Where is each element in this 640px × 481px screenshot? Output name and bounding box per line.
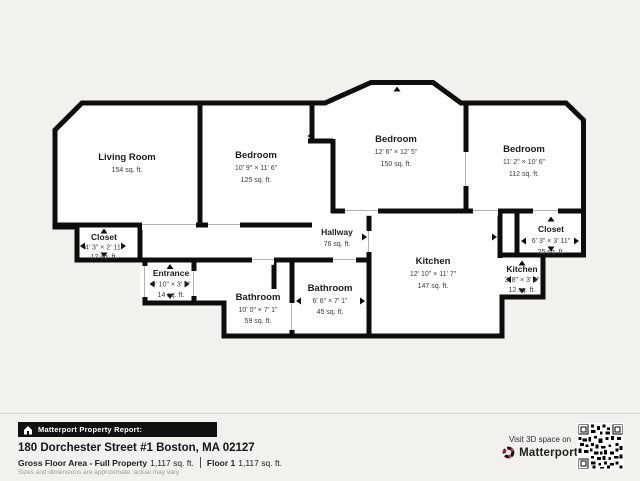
report-title: Matterport Property Report:	[38, 425, 142, 434]
room-label-closet-right: Closet	[538, 224, 564, 234]
room-dims-kitchen-small: 3' 8" × 3' 4"	[504, 277, 540, 284]
room-area-bathroom-large: 59 sq. ft.	[245, 318, 272, 325]
room-area-closet-left: 12 sq. ft.	[91, 254, 118, 261]
gfa-value: 1,117 sq. ft.	[150, 458, 194, 468]
report-footer: Matterport Property Report: 180 Dorchest…	[0, 413, 640, 481]
room-label-bedroom-1: Bedroom	[235, 150, 277, 161]
room-dims-kitchen: 12' 10" × 11' 7"	[410, 271, 457, 278]
matterport-wordmark: Matterport	[519, 447, 578, 459]
room-dims-bedroom-1: 10' 9" × 11' 6"	[235, 165, 278, 172]
room-label-entrance: Entrance	[153, 268, 190, 278]
room-area-living-room: 154 sq. ft.	[112, 167, 143, 174]
floor-plan: Living Room 154 sq. ft. Bedroom 10' 9" ×…	[0, 0, 640, 413]
property-address: 180 Dorchester Street #1 Boston, MA 0212…	[18, 442, 255, 454]
report-title-bar: Matterport Property Report:	[18, 422, 217, 437]
room-area-bedroom-2: 150 sq. ft.	[381, 161, 412, 168]
room-label-closet-left: Closet	[91, 232, 117, 242]
room-label-kitchen: Kitchen	[416, 256, 451, 267]
area-metrics: Gross Floor Area - Full Property 1,117 s…	[18, 457, 282, 468]
room-area-bedroom-3: 112 sq. ft.	[509, 171, 539, 178]
room-area-kitchen-small: 12 sq. ft.	[509, 287, 536, 294]
room-dims-bedroom-2: 12' 6" × 12' 5"	[375, 149, 418, 156]
matterport-logo-icon	[502, 446, 515, 459]
room-label-bathroom-small: Bathroom	[308, 283, 353, 294]
room-label-bedroom-3: Bedroom	[503, 144, 545, 155]
room-dims-bedroom-3: 11' 2" × 10' 6"	[503, 159, 546, 166]
room-dims-entrance: 9' 10" × 3' 8"	[152, 282, 191, 289]
gfa-label: Gross Floor Area - Full Property	[18, 458, 147, 468]
floor-value: 1,117 sq. ft.	[238, 458, 282, 468]
room-label-hallway: Hallway	[321, 227, 353, 237]
room-area-entrance: 14 sq. ft.	[158, 292, 185, 299]
house-icon	[23, 425, 33, 435]
room-dims-bathroom-small: 6' 6" × 7' 1"	[312, 298, 348, 305]
floor-label: Floor 1	[207, 458, 235, 468]
room-dims-closet-left: 4' 3" × 2' 11"	[85, 245, 124, 252]
room-label-living-room: Living Room	[98, 152, 156, 163]
visit-3d-text: Visit 3D space on	[498, 435, 582, 444]
matterport-brand: Matterport	[498, 446, 582, 459]
disclaimer-text: Sizes and dimensions are approximate, ac…	[18, 469, 179, 476]
room-area-bathroom-small: 45 sq. ft.	[317, 309, 344, 316]
room-area-kitchen: 147 sq. ft.	[418, 283, 449, 290]
room-area-hallway: 76 sq. ft.	[324, 241, 351, 248]
room-dims-bathroom-large: 10' 0" × 7' 1"	[239, 307, 278, 314]
qr-code	[577, 423, 624, 470]
room-label-bathroom-large: Bathroom	[236, 292, 281, 303]
room-dims-closet-right: 6' 3" × 3' 11"	[532, 238, 571, 245]
room-label-kitchen-small: Kitchen	[506, 264, 537, 274]
room-area-closet-right: 25 sq. ft.	[538, 249, 565, 256]
room-area-bedroom-1: 125 sq. ft.	[241, 177, 272, 184]
metrics-divider	[200, 457, 201, 468]
room-label-bedroom-2: Bedroom	[375, 134, 417, 145]
